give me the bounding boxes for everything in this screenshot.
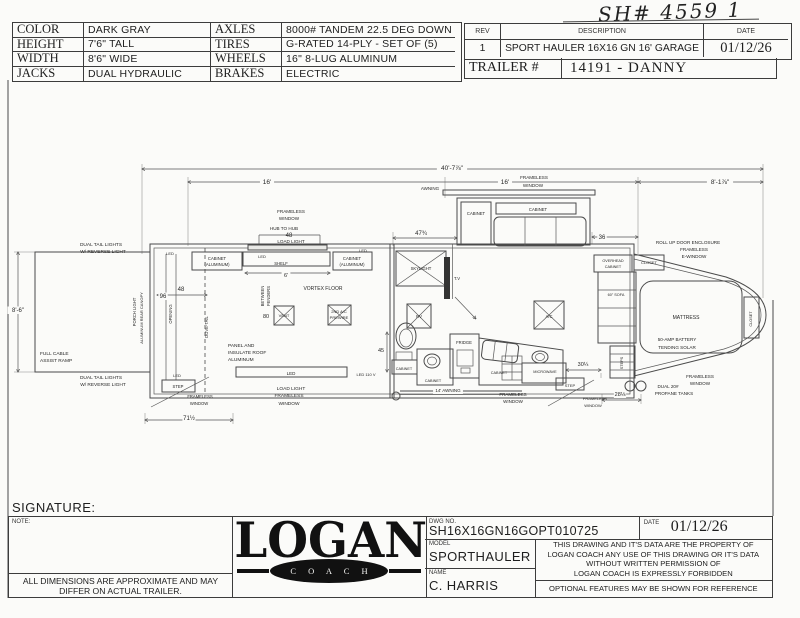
gooseneck-area	[625, 281, 759, 391]
plan-label: DUAL TAIL LIGHTS	[80, 242, 122, 248]
dimensions-disclaimer: ALL DIMENSIONS ARE APPROXIMATE AND MAY D…	[10, 576, 231, 596]
plan-label: CLOSET	[749, 311, 753, 327]
vent-box	[274, 306, 294, 325]
plan-label: FRAMELESS	[583, 396, 608, 401]
rev-header: REV	[465, 24, 501, 40]
nose-closet	[744, 297, 759, 338]
plan-label: FRAMELESS	[686, 374, 714, 379]
plan-label: CABINET	[343, 256, 362, 261]
spec-label: AXLES	[211, 23, 282, 38]
optional-features-note: OPTIONAL FEATURES MAY BE SHOWN FOR REFER…	[535, 580, 773, 598]
plan-label: 45	[378, 348, 384, 354]
spec-label: HEIGHT	[13, 38, 84, 53]
toilet	[396, 323, 416, 349]
mattress	[640, 281, 742, 353]
name-box: NAME C. HARRIS	[425, 568, 536, 598]
plan-label: DOVE-TAIL	[204, 315, 209, 337]
slide-awning	[443, 190, 595, 195]
plan-label: ALUMINUM REAR CANOPY	[139, 292, 144, 344]
bottom-load-light-bar	[236, 367, 347, 377]
plan-label: FRIDGE	[456, 340, 472, 345]
plan-label: FRAMELESS	[274, 393, 303, 399]
drawing-sheet: COLOR DARK GRAY AXLES 8000# TANDEM 22.5 …	[0, 0, 800, 618]
counter	[479, 338, 563, 385]
skylight	[396, 251, 446, 286]
plan-label: CLOSET	[641, 260, 658, 265]
rev-description: SPORT HAULER 16X16 GN 16' GARAGE	[501, 40, 704, 57]
logo-rule-left	[237, 569, 269, 573]
spec-value: ELECTRIC	[282, 67, 455, 82]
date-box: DATE 01/12/26	[639, 516, 773, 540]
plan-label: CABINET	[396, 367, 413, 371]
plan-label: ASSIST RAMP	[40, 358, 72, 364]
spec-label: TIRES	[211, 38, 282, 53]
plan-label: 28⅛	[615, 392, 626, 398]
plan-label: CABINET	[467, 211, 486, 216]
spec-value: 16" 8-LUG ALUMINUM	[282, 52, 455, 67]
steps	[610, 346, 635, 378]
spec-value: 8000# TANDEM 22.5 DEG DOWN	[282, 23, 455, 38]
name-value: C. HARRIS	[429, 578, 498, 593]
plan-label: WINDOW	[278, 401, 300, 407]
plan-label: BETWEEN	[260, 286, 265, 307]
model-value: SPORTHAULER	[429, 549, 531, 564]
spec-label: WHEELS	[211, 52, 282, 67]
plan-label: 14' AWNING	[435, 388, 461, 393]
plan-label: FULL CABLE	[40, 351, 69, 357]
vanity	[417, 349, 453, 385]
plan-label: WINDOW	[690, 381, 711, 386]
plan-label: 96	[160, 294, 167, 300]
plan-label: 2ND A/C	[331, 309, 347, 314]
plan-label: T.V	[454, 276, 460, 281]
tv	[444, 257, 450, 299]
plan-label: LOAD LIGHT	[277, 386, 306, 392]
plan-label: SKYLIGHT	[411, 266, 432, 271]
spec-table: COLOR DARK GRAY AXLES 8000# TANDEM 22.5 …	[12, 22, 462, 82]
plan-label: CABINET	[605, 265, 622, 269]
plan-label: 16'	[263, 179, 271, 186]
plan-label: AWNING	[421, 186, 440, 191]
plan-label: RV	[416, 314, 422, 319]
plan-label: FRAMELESS	[187, 394, 213, 399]
bathroom-area	[390, 244, 476, 398]
plan-label: LED	[258, 254, 266, 259]
plan-label: 80	[263, 314, 269, 320]
plan-label: CABINET	[425, 379, 442, 383]
plan-label: WINDOW	[584, 403, 602, 408]
trailer-outline	[35, 244, 766, 398]
plan-label: FRAMELESS	[680, 247, 708, 252]
plan-label: LOAD LIGHT	[277, 239, 305, 244]
plan-label: W/ REVERSE LIGHT	[80, 382, 126, 388]
plan-label: 50-AMP BATTERY	[658, 337, 697, 342]
spec-value: DARK GRAY	[84, 23, 211, 38]
date-value: 01/12/26	[671, 518, 728, 536]
plan-label: OVERHEAD	[602, 259, 624, 263]
bottom-awning	[392, 391, 522, 400]
slide-out	[457, 198, 590, 246]
fridge	[450, 334, 479, 378]
floorplan-labels: 40'-7⅞"16'16'FRAMELESSWINDOW8'-1⅞"47¾368…	[8, 164, 753, 422]
plan-label: SHELF	[274, 261, 288, 266]
overhead-cabinet	[594, 255, 632, 272]
propane-tank	[625, 381, 635, 391]
dimension-lines	[18, 169, 763, 420]
plan-label: LED	[173, 373, 181, 378]
ac-unit	[534, 301, 564, 329]
plan-label: PREWIRE	[330, 315, 349, 320]
plan-label: (ALUMINUM)	[204, 262, 230, 267]
logo-coach-ellipse: C O A C H	[270, 559, 388, 583]
garage-shelf	[243, 252, 330, 266]
spec-label: JACKS	[13, 67, 84, 82]
trailer-value: 14191 - DANNY	[562, 58, 687, 78]
logo-rule-right	[389, 569, 421, 573]
propane-tank	[636, 381, 646, 391]
revision-table: REV DESCRIPTION DATE 1 SPORT HAULER 16X1…	[464, 23, 792, 60]
plan-label: 47¾	[415, 231, 428, 237]
note-label: NOTE:	[12, 519, 30, 525]
plan-label: W/ REVERSE LIGHT	[80, 249, 126, 255]
plan-label: CABINET	[208, 256, 227, 261]
plan-label: FRAMELESS	[520, 175, 548, 180]
model-box: MODEL SPORTHAULER	[425, 539, 536, 569]
name-label: NAME	[429, 570, 446, 576]
plan-label: LED	[359, 248, 367, 253]
plan-label: ALUMINUM	[228, 357, 254, 363]
plan-label: TENDING SOLAR	[658, 345, 696, 350]
bath-cabinet	[392, 360, 417, 374]
plan-label: 8'-1⅞"	[711, 179, 730, 186]
date-label: DATE	[644, 520, 660, 526]
spec-value: DUAL HYDRAULIC	[84, 67, 211, 82]
plan-label: LED	[287, 371, 297, 376]
kitchen-sink	[532, 351, 548, 363]
plan-label: (ALUMINUM)	[339, 262, 365, 267]
plan-label: FENDERS	[266, 286, 271, 306]
dwg-number: SH16X16GN16GOPT010725	[429, 524, 599, 538]
plan-label: CABINET	[491, 371, 508, 375]
note-divider	[8, 573, 233, 574]
legal-notice: THIS DRAWING AND IT'S DATA ARE THE PROPE…	[535, 539, 773, 581]
second-ac-prewire-box	[328, 305, 351, 325]
plan-label: 48	[286, 233, 293, 239]
rear-step	[162, 380, 195, 392]
plan-label: PROPANE TANKS	[655, 391, 693, 396]
plan-label: WINDOW	[279, 216, 300, 221]
plan-label: 48	[178, 287, 185, 293]
microwave	[522, 363, 566, 383]
spec-value: G-RATED 14-PLY - SET OF (5)	[282, 38, 455, 53]
top-closet	[634, 255, 664, 270]
rev-number: 1	[465, 40, 501, 57]
plan-label: HUB TO HUB	[270, 226, 298, 231]
spec-label: WIDTH	[13, 52, 84, 67]
plan-label: 60" SOFA	[608, 293, 625, 297]
plan-label: STEPS	[620, 356, 624, 369]
date-header: DATE	[704, 24, 788, 40]
plan-label: ROLL UP DOOR ENCLOSURE	[656, 240, 720, 245]
spec-value: 8'6" WIDE	[84, 52, 211, 67]
plan-label: STEP	[173, 384, 184, 389]
garage-cabinet-right	[333, 252, 372, 270]
plan-label: 16'	[501, 179, 509, 186]
rv-vent	[407, 304, 431, 328]
plan-label: OPENING	[168, 304, 173, 323]
garage-cabinet-left	[192, 252, 242, 270]
plan-label: STEP	[565, 383, 576, 388]
plan-label: MATTRESS	[673, 315, 701, 321]
plan-label: DUAL TAIL LIGHTS	[80, 375, 122, 381]
garage-area	[151, 245, 372, 407]
signature-label: SIGNATURE:	[12, 500, 96, 515]
sofa-60	[598, 272, 636, 343]
plan-label: PORCH LIGHT	[132, 297, 137, 326]
living-area	[392, 190, 664, 406]
kitchen-area	[450, 334, 566, 385]
logo-coach-text: C O A C H	[285, 566, 372, 576]
plan-label: VENT	[279, 313, 290, 318]
plan-label: FRAMELESS	[499, 392, 526, 397]
plan-label: A/C	[546, 314, 553, 319]
bath-sink	[424, 354, 440, 368]
spec-label: COLOR	[13, 23, 84, 38]
plan-label: 6'	[284, 273, 288, 279]
plan-label: INSULATE ROOF	[228, 350, 266, 356]
dwg-number-box: DWG NO. SH16X16GN16GOPT010725	[425, 516, 640, 540]
plan-label: WINDOW	[523, 183, 544, 188]
plan-label: PANEL AND	[228, 343, 255, 349]
plan-label: 36	[599, 235, 606, 241]
plan-label: MICROWAVE	[533, 370, 557, 374]
plan-label: DUAL 20#	[657, 384, 678, 389]
rev-date: 01/12/26	[704, 40, 788, 57]
plan-label: CABINET	[529, 207, 548, 212]
rear-ramp	[35, 252, 150, 372]
trailer-label: TRAILER #	[465, 58, 562, 78]
plan-label: VORTEX FLOOR	[303, 286, 342, 292]
plan-label: 30¼	[578, 362, 589, 368]
spec-value: 7'6" TALL	[84, 38, 211, 53]
rear-door-swing	[151, 377, 209, 407]
top-load-light-bar	[248, 245, 327, 250]
plan-label: 8'-6"	[12, 308, 24, 314]
drawers	[502, 356, 522, 380]
plan-label: FRAMELESS	[277, 209, 305, 214]
plan-label: E-WINDOW	[682, 254, 707, 259]
front-step	[556, 378, 584, 390]
plan-label: 71½	[183, 415, 195, 422]
plan-label: LED	[166, 251, 174, 256]
trailer-number-row: TRAILER # 14191 - DANNY	[464, 58, 777, 79]
spec-label: BRAKES	[211, 67, 282, 82]
plan-label: 40'-7⅞"	[441, 165, 464, 172]
model-label: MODEL	[429, 541, 450, 547]
bath-door-swing	[455, 297, 476, 319]
plan-label: WINDOW	[190, 401, 208, 406]
description-header: DESCRIPTION	[501, 24, 704, 40]
plan-label: WINDOW	[503, 399, 523, 404]
front-door-swing	[548, 380, 594, 406]
stove	[481, 340, 519, 363]
plan-label: LED 110 V	[356, 372, 375, 377]
extension-lines	[14, 164, 763, 424]
